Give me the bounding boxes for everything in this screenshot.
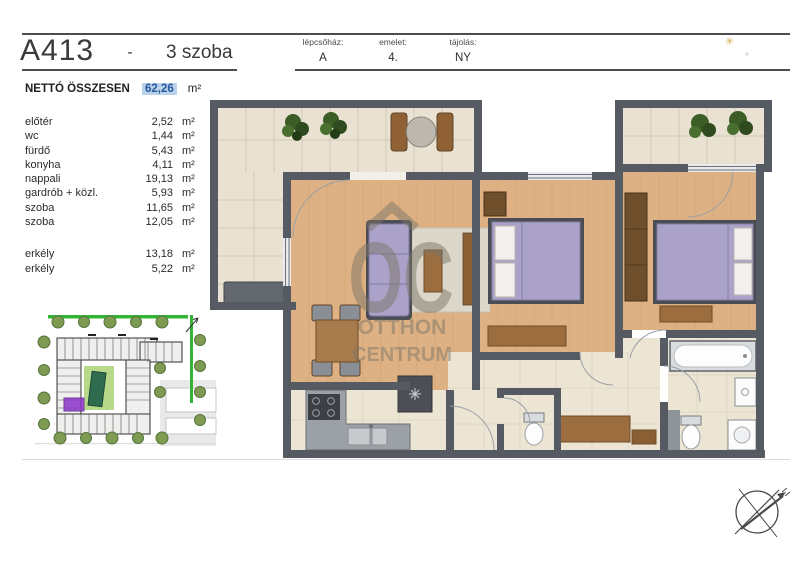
room-name: wc <box>25 130 131 142</box>
room-name: nappali <box>25 173 131 185</box>
bathtub <box>670 341 756 371</box>
nightstand <box>484 192 506 216</box>
kitchen-column <box>398 376 432 412</box>
wardrobe <box>625 193 647 301</box>
room-area: 13,18 <box>131 248 173 260</box>
info-col-floor: emelet: 4. <box>358 37 428 64</box>
net-total-label: NETTÓ ÖSSZESEN <box>25 83 142 95</box>
room-row: szoba 11,65 m² <box>25 202 212 216</box>
bench <box>660 306 712 322</box>
room-unit: m² <box>182 130 212 142</box>
info-col-staircase: lépcsőház: A <box>288 37 358 64</box>
room-row: konyha 4,11 m² <box>25 159 212 173</box>
window <box>528 172 592 180</box>
window <box>688 164 756 172</box>
page-separator <box>22 459 790 460</box>
bath-sink <box>735 378 756 406</box>
toilet <box>524 413 544 445</box>
room-name: szoba <box>25 202 131 214</box>
room-area: 11,65 <box>131 202 173 214</box>
staircase-label: lépcsőház: <box>288 37 358 47</box>
header-top-rule <box>22 33 790 35</box>
watermark-line2: CENTRUM <box>352 344 452 366</box>
room-count-label: 3 szoba <box>166 42 233 64</box>
room-row: fürdő 5,43 m² <box>25 145 212 159</box>
title-separator: - <box>118 44 142 62</box>
room-area: 5,43 <box>131 145 173 157</box>
balcony-row: erkély 13,18 m² <box>25 248 212 262</box>
bed <box>653 220 757 304</box>
net-total-value: 62,26 <box>142 83 177 95</box>
floor-plan: OC OTTHON CENTRUM <box>210 100 772 458</box>
room-unit: m² <box>182 116 212 128</box>
room-name: gardrób + közl. <box>25 187 131 199</box>
room-area: 5,22 <box>131 263 173 275</box>
speck-dot <box>745 52 749 56</box>
terrace-bench <box>224 282 286 305</box>
watermark-line1: OTTHON <box>358 316 447 339</box>
dresser <box>488 326 566 346</box>
window <box>283 238 291 286</box>
room-name: konyha <box>25 159 131 171</box>
terrace-table <box>391 113 453 151</box>
room-area: 12,05 <box>131 216 173 228</box>
room-area: 19,13 <box>131 173 173 185</box>
site-plan <box>35 315 216 446</box>
room-area: 5,93 <box>131 187 173 199</box>
staircase-value: A <box>288 52 358 64</box>
room-unit: m² <box>182 216 212 228</box>
hall-cabinet <box>632 430 656 444</box>
info-col-orientation: tájolás: NY <box>428 37 498 64</box>
room-name: fürdő <box>25 145 131 157</box>
room-name: erkély <box>25 263 131 275</box>
room-unit: m² <box>182 145 212 157</box>
sparkle-icon: ✳ <box>725 35 734 48</box>
room-unit: m² <box>182 159 212 171</box>
room-unit: m² <box>182 263 212 275</box>
room-list: előtér 2,52 m² wc 1,44 m² fürdő 5,43 m² … <box>25 116 212 277</box>
room-name: szoba <box>25 216 131 228</box>
room-unit: m² <box>182 187 212 199</box>
stove <box>308 394 340 420</box>
list-gap <box>25 230 212 248</box>
room-name: erkély <box>25 248 131 260</box>
net-total-row: NETTÓ ÖSSZESEN 62,26 m² <box>25 83 201 95</box>
room-row: gardrób + közl. 5,93 m² <box>25 187 212 201</box>
room-name: előtér <box>25 116 131 128</box>
washing-machine <box>728 420 756 450</box>
net-total-unit: m² <box>188 83 201 95</box>
floor-label: emelet: <box>358 37 428 47</box>
page-title: A413 <box>20 34 94 68</box>
floor-value: 4. <box>358 52 428 64</box>
room-row: nappali 19,13 m² <box>25 173 212 187</box>
room-row: szoba 12,05 m² <box>25 216 212 230</box>
title-underline <box>22 69 237 71</box>
table-underline <box>295 69 790 71</box>
tv-cabinet <box>463 233 473 305</box>
room-unit: m² <box>182 202 212 214</box>
room-area: 2,52 <box>131 116 173 128</box>
room-row: wc 1,44 m² <box>25 130 212 144</box>
orientation-value: NY <box>428 52 498 64</box>
hall-wardrobe <box>560 416 630 442</box>
room-unit: m² <box>182 173 212 185</box>
info-table: lépcsőház: A emelet: 4. tájolás: NY <box>288 37 498 64</box>
balcony-row: erkély 5,22 m² <box>25 263 212 277</box>
room-area: 1,44 <box>131 130 173 142</box>
room-row: előtér 2,52 m² <box>25 116 212 130</box>
toilet <box>681 416 701 449</box>
bath-wall-block <box>668 410 680 450</box>
bed <box>488 218 584 304</box>
room-unit: m² <box>182 248 212 260</box>
room-area: 4,11 <box>131 159 173 171</box>
compass-icon <box>735 488 790 537</box>
site-unit-highlight <box>64 398 84 411</box>
orientation-label: tájolás: <box>428 37 498 47</box>
